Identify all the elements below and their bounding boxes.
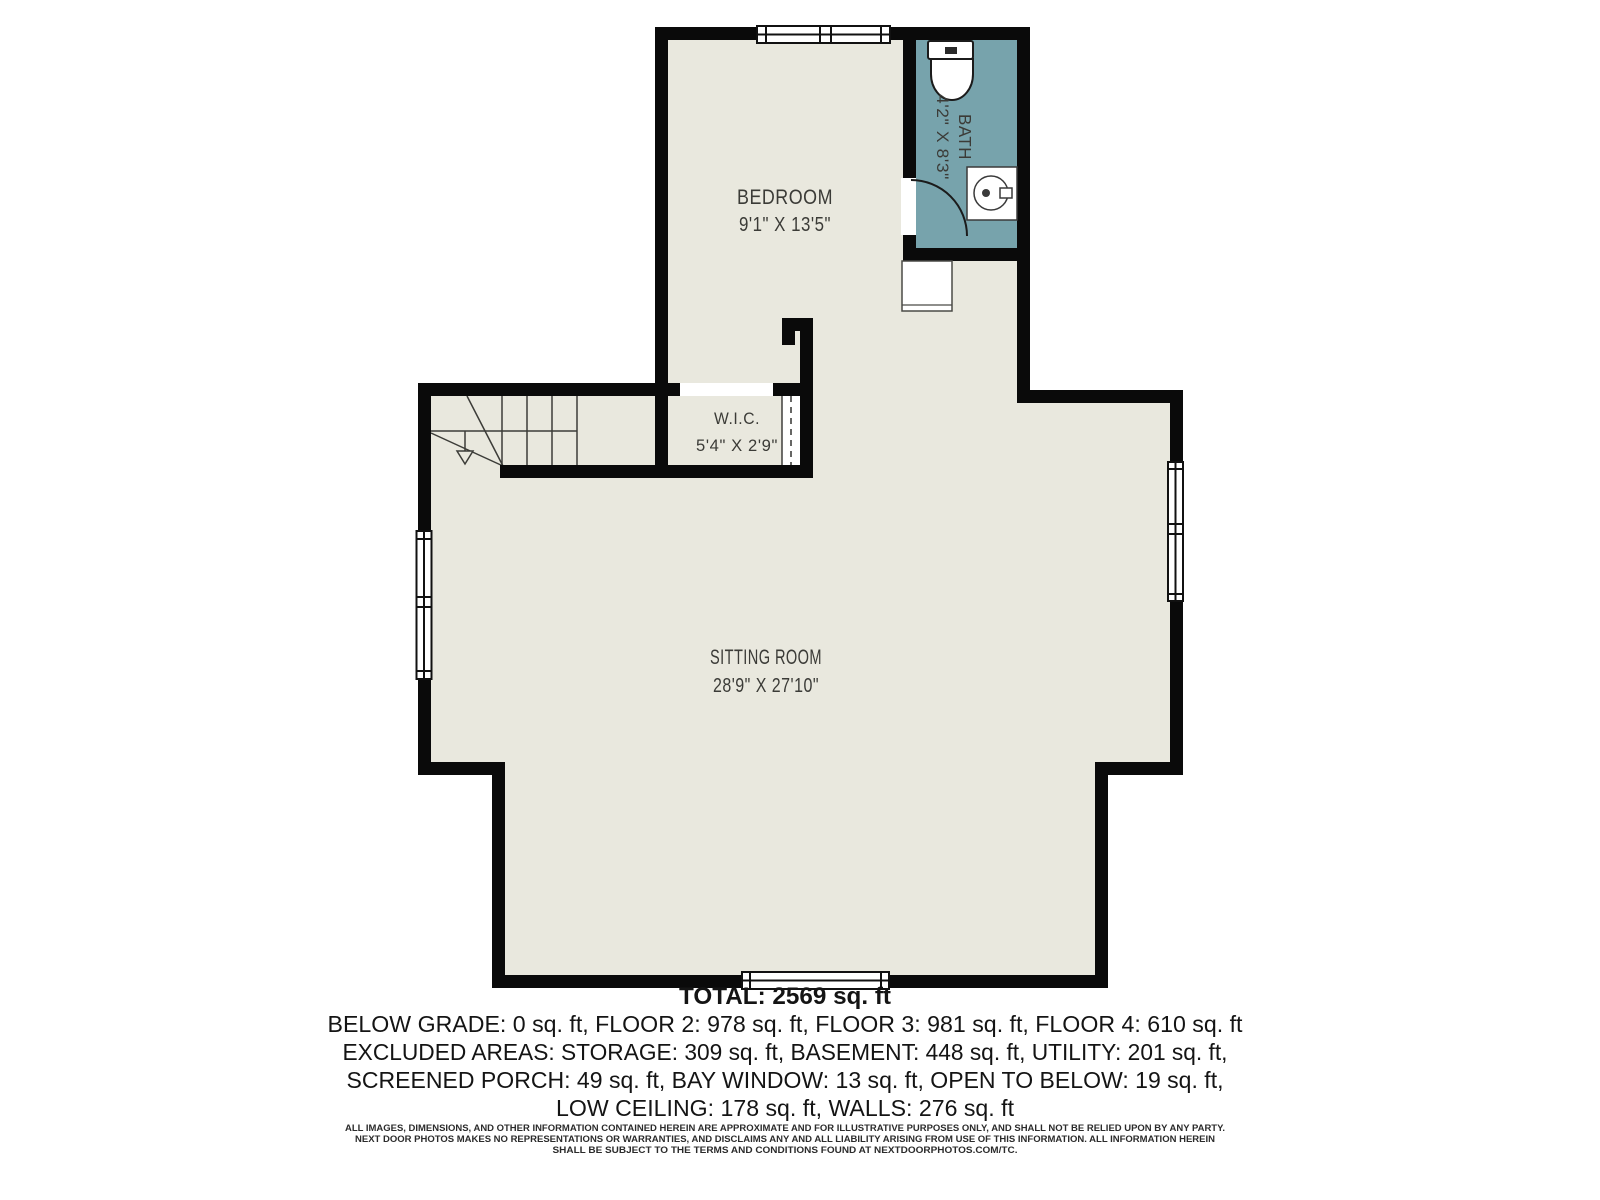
window-right [1168, 462, 1183, 601]
floor-plan-drawing: BEDROOM 9'1" X 13'5" BATH 4'2" X 8'3" W.… [0, 0, 1600, 1200]
sitting-room-dims: 28'9" X 27'10" [713, 675, 819, 697]
disclaimer-line-2: NEXT DOOR PHOTOS MAKES NO REPRESENTATION… [355, 1134, 1215, 1145]
bedroom-dims: 9'1" X 13'5" [739, 214, 831, 236]
window-top [757, 26, 890, 43]
summary-line-2: EXCLUDED AREAS: STORAGE: 309 sq. ft, BAS… [343, 1039, 1228, 1065]
floor-area [418, 27, 1183, 988]
summary-line-3: SCREENED PORCH: 49 sq. ft, BAY WINDOW: 1… [347, 1067, 1224, 1093]
wic-dims: 5'4" X 2'9" [696, 437, 778, 455]
bedroom-label: BEDROOM [737, 186, 833, 209]
disclaimer-line-1: ALL IMAGES, DIMENSIONS, AND OTHER INFORM… [345, 1123, 1225, 1134]
summary-line-1: BELOW GRADE: 0 sq. ft, FLOOR 2: 978 sq. … [328, 1011, 1244, 1037]
total-area-text: TOTAL: 2569 sq. ft [679, 983, 891, 1010]
shaft-box [902, 261, 952, 311]
bath-label: BATH [955, 114, 975, 160]
summary-line-4: LOW CEILING: 178 sq. ft, WALLS: 276 sq. … [556, 1095, 1015, 1121]
window-left [417, 531, 432, 679]
disclaimer-line-3: SHALL BE SUBJECT TO THE TERMS AND CONDIT… [553, 1145, 1018, 1156]
floor-plan-page: BEDROOM 9'1" X 13'5" BATH 4'2" X 8'3" W.… [0, 0, 1600, 1200]
wic-label: W.I.C. [714, 409, 760, 428]
sitting-room-label: SITTING ROOM [710, 646, 822, 669]
sink-icon [967, 167, 1017, 220]
bath-dims: 4'2" X 8'3" [933, 94, 951, 180]
